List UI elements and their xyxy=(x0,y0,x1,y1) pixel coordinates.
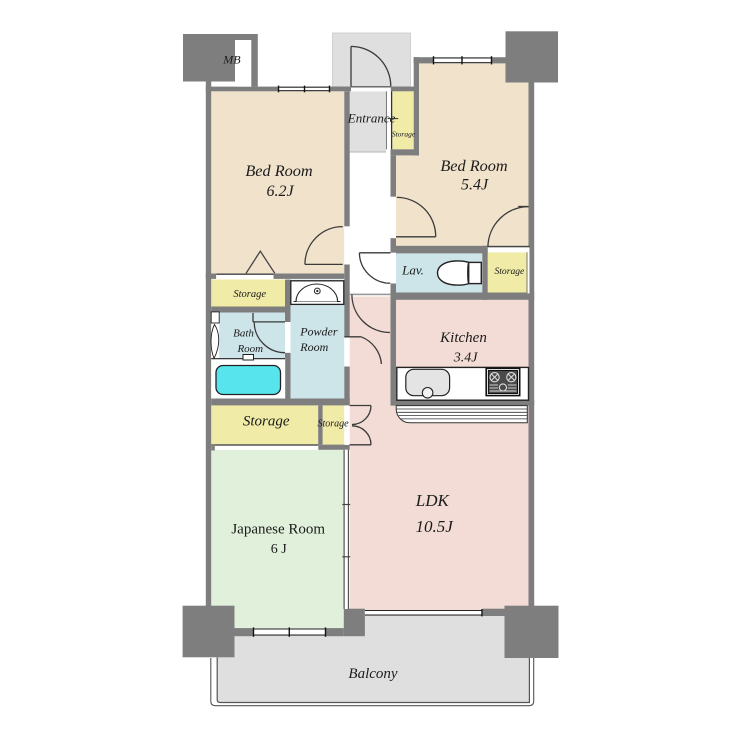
svg-text:6 J: 6 J xyxy=(271,542,288,557)
svg-text:Storage: Storage xyxy=(233,289,266,300)
svg-text:MB: MB xyxy=(222,53,241,67)
svg-text:Kitchen: Kitchen xyxy=(439,330,487,346)
svg-text:Storage: Storage xyxy=(317,419,349,430)
svg-text:LDK: LDK xyxy=(415,491,451,510)
svg-text:Room: Room xyxy=(236,343,263,355)
svg-text:Lav.: Lav. xyxy=(401,263,424,278)
svg-text:Room: Room xyxy=(299,340,328,354)
svg-text:Bath: Bath xyxy=(233,328,254,340)
svg-text:Powder: Powder xyxy=(299,324,338,338)
svg-text:Entrance: Entrance xyxy=(347,110,396,125)
svg-text:Bed Room: Bed Room xyxy=(245,161,313,180)
svg-text:Bed Room: Bed Room xyxy=(440,156,508,175)
svg-text:3.4J: 3.4J xyxy=(453,351,479,366)
svg-text:5.4J: 5.4J xyxy=(461,177,489,194)
svg-text:Storage: Storage xyxy=(494,266,525,277)
svg-text:10.5J: 10.5J xyxy=(416,517,455,536)
svg-text:Balcony: Balcony xyxy=(348,666,397,682)
svg-text:Storage: Storage xyxy=(392,130,416,139)
svg-text:Storage: Storage xyxy=(243,414,290,430)
svg-text:Japanese Room: Japanese Room xyxy=(231,522,325,538)
svg-text:6.2J: 6.2J xyxy=(266,183,294,200)
